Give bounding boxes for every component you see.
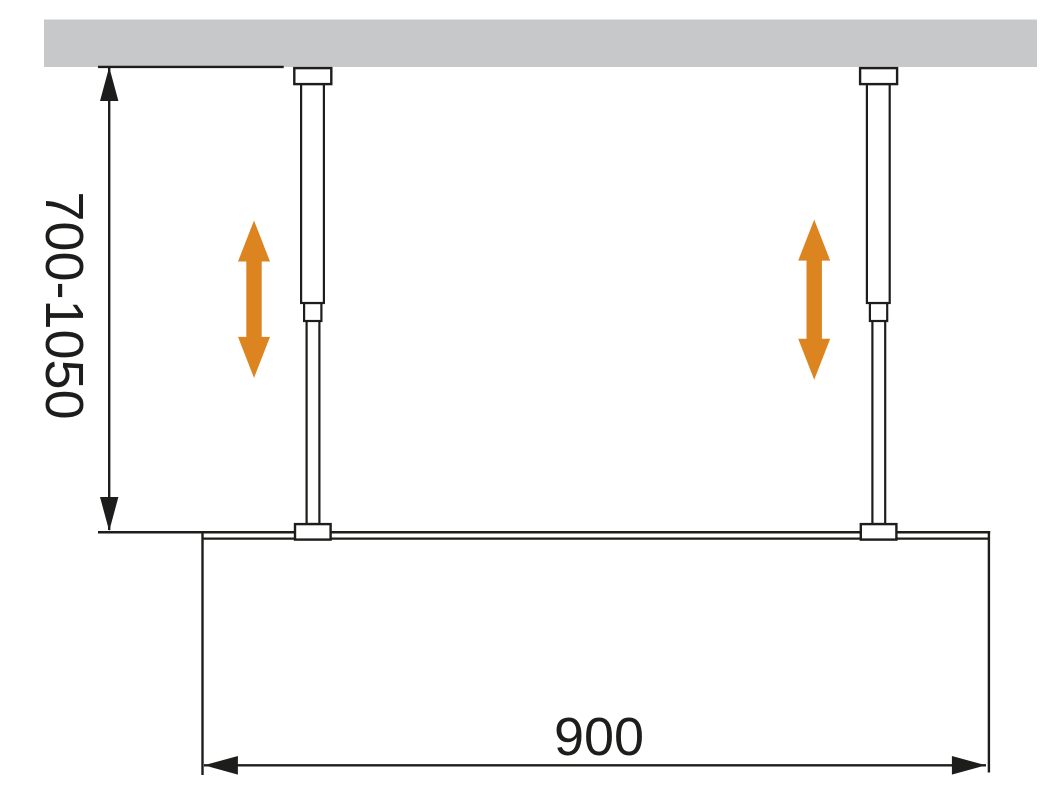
svg-text:900: 900 [554, 707, 644, 767]
svg-text:700-1050: 700-1050 [34, 191, 94, 419]
